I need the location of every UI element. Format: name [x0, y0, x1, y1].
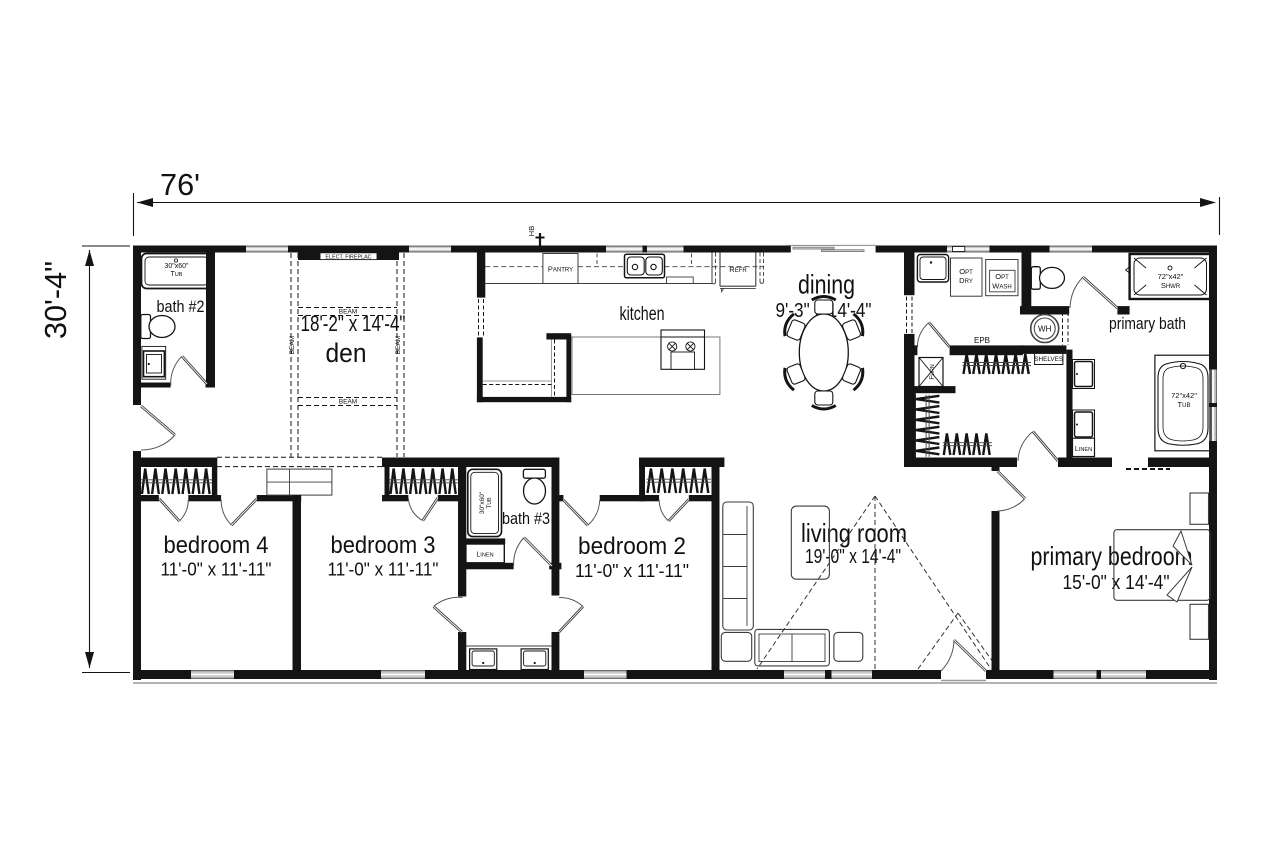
- svg-text:LINEN: LINEN: [1075, 446, 1092, 453]
- svg-text:kitchen: kitchen: [620, 304, 665, 325]
- svg-text:primary bedroom: primary bedroom: [1031, 541, 1193, 571]
- svg-text:LINEN: LINEN: [476, 552, 493, 559]
- svg-text:BEAM: BEAM: [289, 336, 296, 354]
- svg-text:bedroom 2: bedroom 2: [578, 533, 686, 560]
- svg-text:30"x60": 30"x60": [479, 491, 486, 514]
- svg-text:18'-2" x 14'-4": 18'-2" x 14'-4": [301, 311, 406, 336]
- svg-text:dining: dining: [798, 270, 855, 300]
- svg-text:den: den: [326, 338, 367, 368]
- svg-text:EPB: EPB: [974, 336, 990, 345]
- svg-text:72"x42": 72"x42": [1158, 272, 1184, 281]
- svg-text:SHELVES: SHELVES: [1034, 356, 1063, 363]
- svg-text:15'-0" x 14'-4": 15'-0" x 14'-4": [1063, 572, 1170, 594]
- svg-text:ELECT. FIREPLAC: ELECT. FIREPLAC: [325, 254, 371, 260]
- svg-text:BEAM: BEAM: [339, 399, 357, 406]
- svg-text:19'-0" x 14'-4": 19'-0" x 14'-4": [805, 546, 901, 568]
- svg-text:72"x42": 72"x42": [1171, 391, 1197, 400]
- svg-text:BEAM: BEAM: [395, 336, 402, 354]
- svg-text:bedroom 4: bedroom 4: [164, 532, 269, 559]
- svg-text:30"x60": 30"x60": [164, 263, 189, 270]
- svg-text:30'-4": 30'-4": [38, 261, 73, 339]
- svg-text:bath #3: bath #3: [502, 509, 550, 528]
- svg-text:living room: living room: [801, 518, 907, 548]
- svg-text:bedroom 3: bedroom 3: [331, 532, 436, 559]
- svg-text:11'-0" x 11'-11": 11'-0" x 11'-11": [575, 560, 689, 581]
- svg-text:11'-0" x 11'-11": 11'-0" x 11'-11": [161, 559, 272, 580]
- svg-text:76': 76': [160, 167, 200, 202]
- svg-text:FURN: FURN: [929, 364, 936, 379]
- svg-text:bath #2: bath #2: [157, 297, 205, 316]
- svg-text:primary bath: primary bath: [1109, 314, 1186, 333]
- svg-text:TUB: TUB: [170, 271, 182, 278]
- svg-text:WH: WH: [1038, 325, 1052, 334]
- svg-text:HB: HB: [527, 226, 536, 236]
- svg-text:11'-0" x 11'-11": 11'-0" x 11'-11": [328, 559, 439, 580]
- svg-text:TUB: TUB: [486, 497, 493, 509]
